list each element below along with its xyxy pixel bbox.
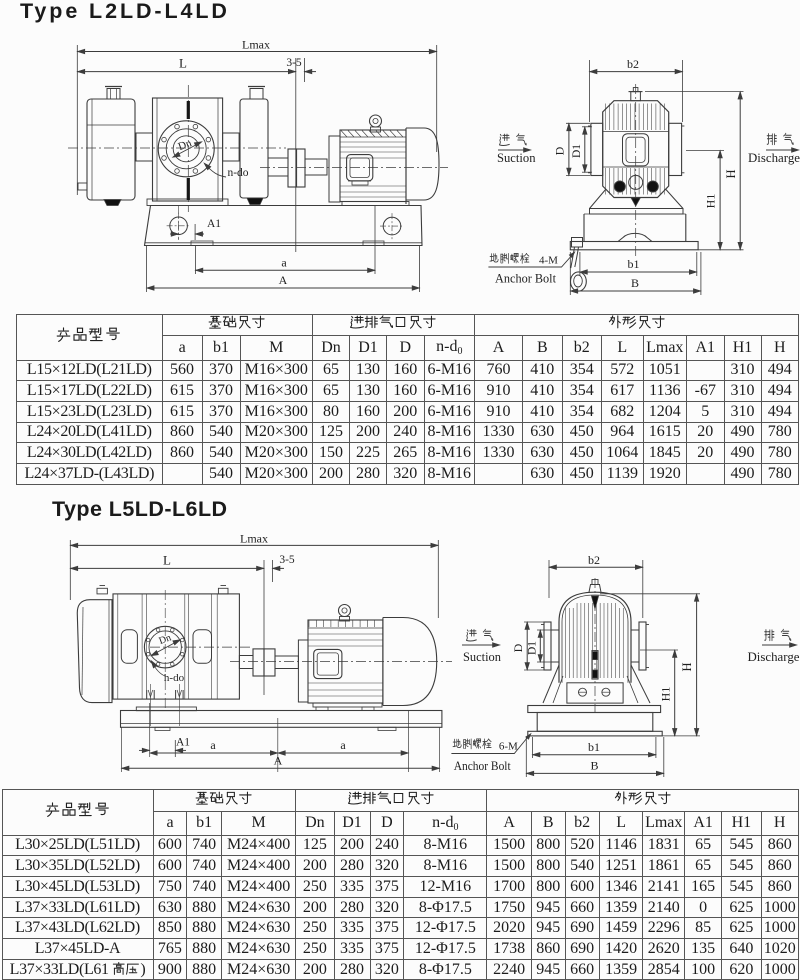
svg-text:A1: A1	[207, 218, 221, 230]
svg-text:D: D	[553, 146, 567, 155]
svg-text:A: A	[279, 273, 288, 287]
svg-text:3-5: 3-5	[286, 57, 302, 69]
svg-text:Suction: Suction	[497, 151, 536, 165]
svg-text:a: a	[340, 738, 346, 752]
svg-text:H: H	[724, 169, 738, 178]
svg-text:a: a	[210, 738, 216, 752]
svg-text:b2: b2	[588, 553, 600, 567]
svg-text:4-M: 4-M	[539, 255, 558, 267]
svg-text:H1: H1	[704, 194, 718, 209]
svg-text:B: B	[590, 759, 598, 773]
svg-text:h-do: h-do	[164, 672, 185, 684]
svg-text:L: L	[163, 553, 171, 568]
svg-text:H: H	[680, 662, 694, 671]
svg-text:3-5: 3-5	[279, 554, 295, 566]
svg-text:A1: A1	[176, 737, 190, 749]
svg-text:b2: b2	[627, 57, 639, 71]
svg-text:L: L	[179, 56, 187, 71]
svg-text:D: D	[511, 643, 525, 652]
svg-text:n-do: n-do	[227, 167, 248, 179]
svg-text:A: A	[274, 754, 283, 768]
svg-text:Dn: Dn	[177, 137, 194, 153]
svg-text:Anchor Bolt: Anchor Bolt	[454, 758, 511, 773]
svg-text:b1: b1	[588, 740, 600, 754]
svg-text:Lmax: Lmax	[240, 532, 268, 546]
svg-text:b1: b1	[628, 257, 640, 271]
svg-text:H1: H1	[659, 687, 673, 702]
svg-text:D1: D1	[527, 641, 539, 655]
svg-text:Lmax: Lmax	[242, 38, 270, 52]
svg-text:Discharge: Discharge	[748, 151, 800, 165]
svg-text:Anchor Bolt: Anchor Bolt	[495, 271, 556, 286]
svg-text:Discharge: Discharge	[748, 650, 800, 664]
svg-text:a: a	[281, 256, 287, 270]
svg-text:6-M: 6-M	[499, 741, 518, 753]
svg-text:Suction: Suction	[463, 650, 502, 664]
svg-text:B: B	[631, 276, 639, 290]
svg-text:D1: D1	[571, 144, 583, 158]
